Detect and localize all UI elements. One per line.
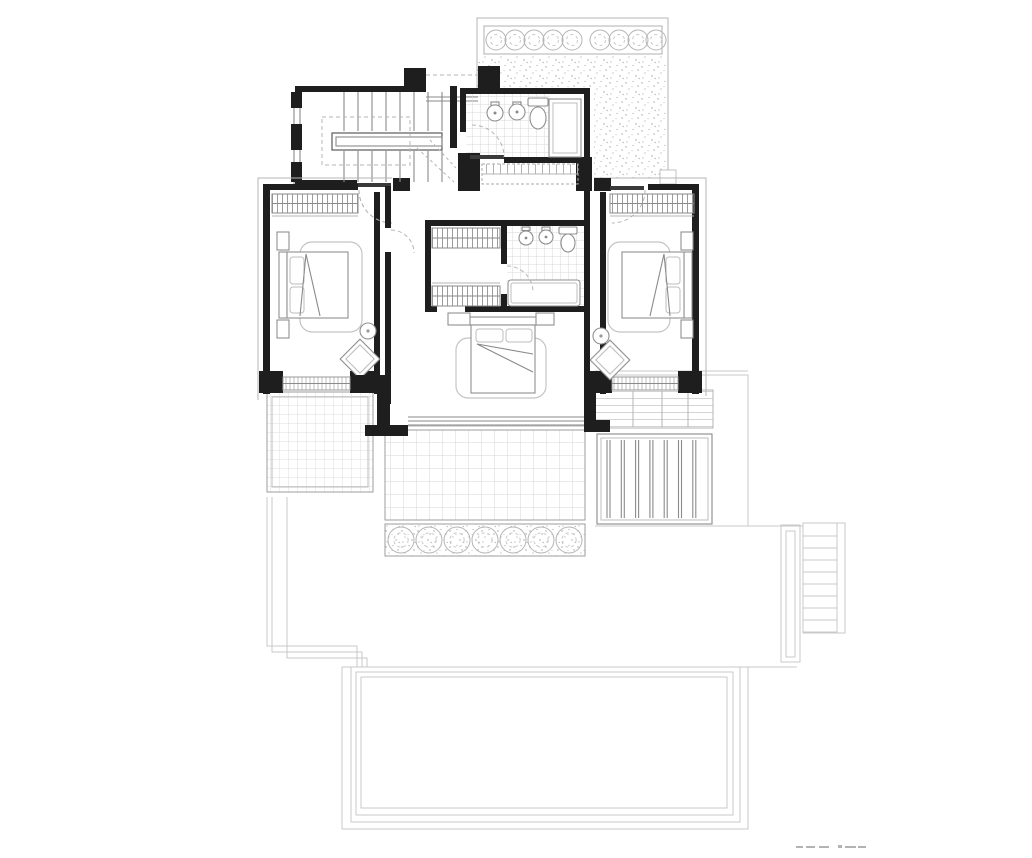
wardrobe [432, 228, 500, 248]
handrail-outer [781, 525, 800, 662]
toilet [528, 98, 548, 129]
deck-slats [607, 440, 696, 518]
external-stair-treads [803, 536, 837, 632]
floor-plan-canvas [0, 0, 1032, 858]
bedroom-right [588, 178, 706, 396]
wall-segment [291, 92, 302, 108]
wall [648, 184, 699, 190]
paving-grid [385, 430, 585, 520]
paving-grid [267, 392, 373, 492]
terrace-ring [356, 672, 733, 815]
door-swing-arc [391, 230, 414, 253]
wall [460, 88, 466, 132]
wardrobe [432, 283, 500, 306]
nightstand [448, 313, 470, 325]
wall [465, 306, 590, 312]
scale-mark [806, 846, 815, 848]
wall-step [584, 420, 610, 432]
walk-in-closet-and-ensuite [425, 220, 590, 312]
wall [385, 186, 391, 228]
nightstand [536, 313, 554, 325]
side-table [360, 323, 376, 339]
stair-rail-inner [336, 137, 442, 146]
pool-terrace-rings [342, 667, 748, 829]
wall-pier [678, 371, 702, 393]
scale-mark [858, 846, 866, 848]
double-bed [279, 252, 348, 318]
terrace-center [385, 426, 585, 556]
window-band [283, 377, 350, 390]
external-stair-frame [803, 523, 845, 633]
lower-terrace-edge-outline [267, 497, 357, 667]
terrace-left [267, 392, 373, 492]
terrace-step [660, 170, 676, 184]
wall-step [356, 375, 388, 388]
stair-flight-upper [344, 92, 442, 131]
floor-plan-drawing [0, 0, 1032, 858]
timber-deck-frame [597, 434, 712, 524]
shower [549, 99, 581, 157]
wall-pier [404, 68, 426, 92]
nightstand [277, 232, 289, 250]
wall [425, 220, 590, 226]
built-in-wardrobe [272, 194, 358, 216]
partition-wall [501, 226, 507, 264]
wall-segment [291, 162, 302, 182]
stair-void-dashed [322, 117, 410, 165]
terrace-ring [342, 667, 748, 829]
stair-rail [332, 133, 442, 150]
bathtub [508, 280, 580, 306]
double-bed [469, 317, 537, 393]
hall-wardrobe [482, 164, 578, 184]
paving-tiles [595, 390, 713, 428]
scale-mark [796, 846, 803, 848]
nightstand [277, 320, 289, 338]
wall [263, 184, 358, 190]
wall [425, 306, 437, 312]
glazed-wall [408, 417, 584, 425]
wall-segment [291, 124, 302, 150]
window-band [612, 377, 678, 390]
wall-pier [594, 178, 611, 191]
scale-mark [845, 846, 856, 848]
wall [425, 220, 431, 312]
timber-deck-inner [601, 438, 708, 520]
lower-terrace-edge-outline [287, 497, 367, 667]
built-in-wardrobe [610, 194, 694, 216]
handrail-inner [786, 531, 795, 657]
door-leaf [610, 186, 644, 190]
master-suite [356, 186, 610, 436]
wall [263, 184, 270, 394]
scale-note-marks [796, 845, 866, 848]
scale-mark [838, 845, 842, 848]
hedge-planter [385, 524, 585, 556]
stair-flight-lower [344, 151, 442, 182]
wall [295, 86, 408, 92]
wall [450, 86, 457, 148]
nightstand [681, 320, 693, 338]
terrace-ring [351, 667, 740, 822]
wall [460, 88, 590, 94]
nightstand [681, 232, 693, 250]
toilet [559, 227, 577, 252]
wall-pier [393, 178, 410, 191]
bedroom-left [258, 178, 392, 400]
wall-pier [259, 371, 283, 393]
external-stair [781, 523, 845, 662]
terrace-right [595, 390, 713, 524]
side-table [593, 328, 609, 344]
family-bathroom [458, 88, 592, 192]
door-leaf [470, 155, 504, 159]
lower-terrace-edge-outline [272, 497, 362, 667]
wall-step [365, 425, 408, 436]
double-bed [622, 252, 692, 318]
terrace-ring [361, 677, 727, 808]
scale-mark [819, 846, 829, 848]
